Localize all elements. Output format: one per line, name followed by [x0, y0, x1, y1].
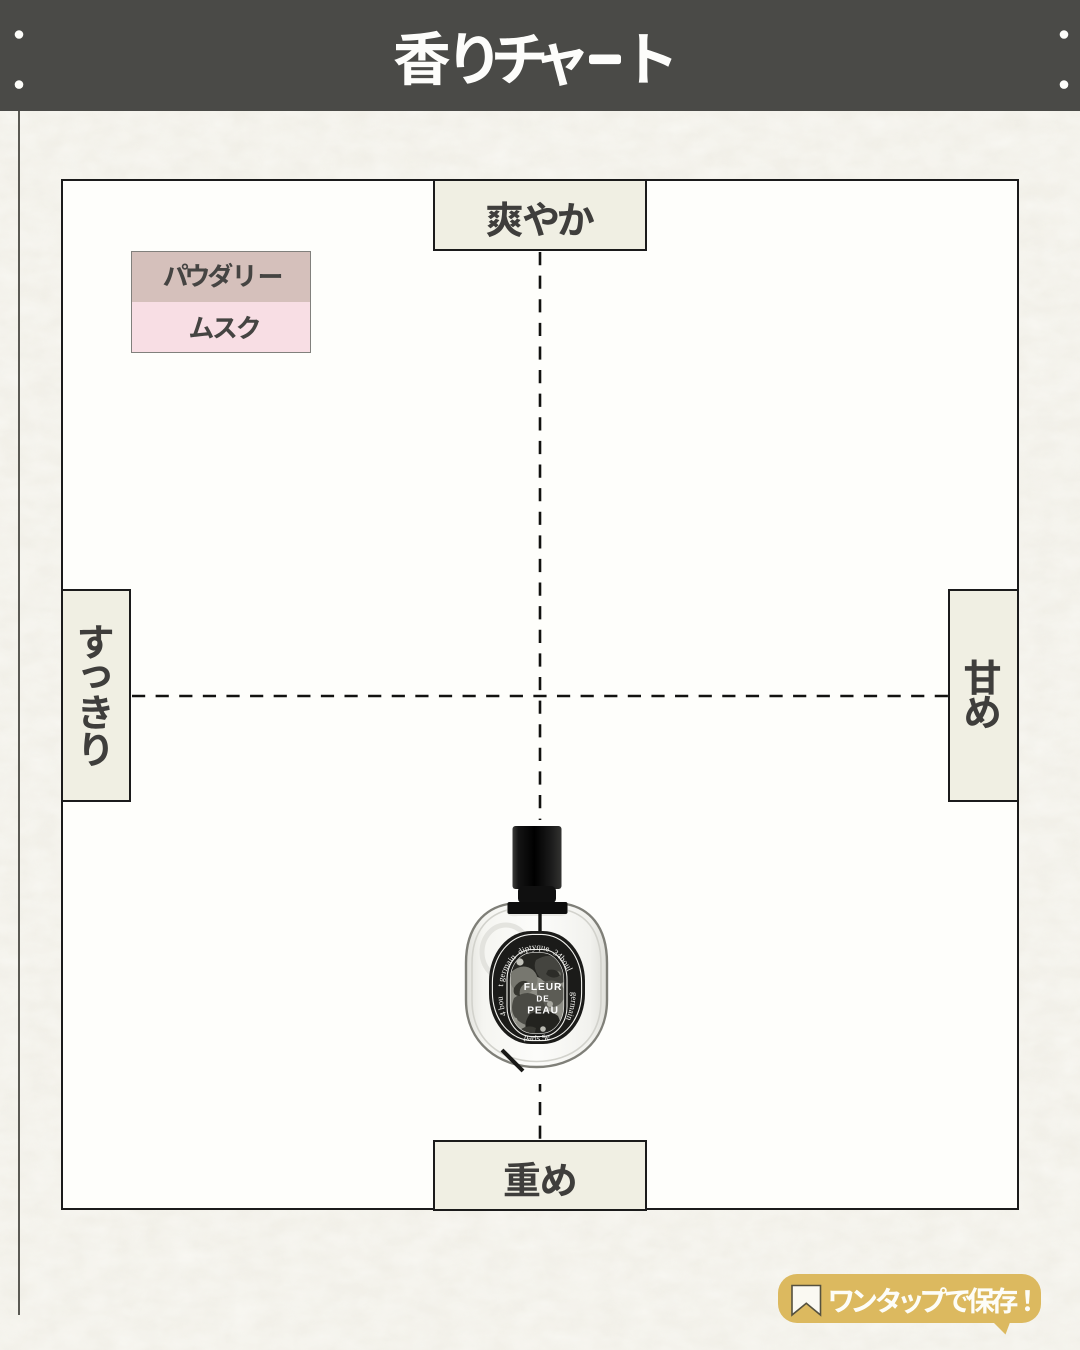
svg-text:DE: DE	[536, 995, 549, 1004]
svg-text:FLEUR: FLEUR	[524, 982, 562, 993]
svg-text:PEAU: PEAU	[527, 1006, 559, 1017]
